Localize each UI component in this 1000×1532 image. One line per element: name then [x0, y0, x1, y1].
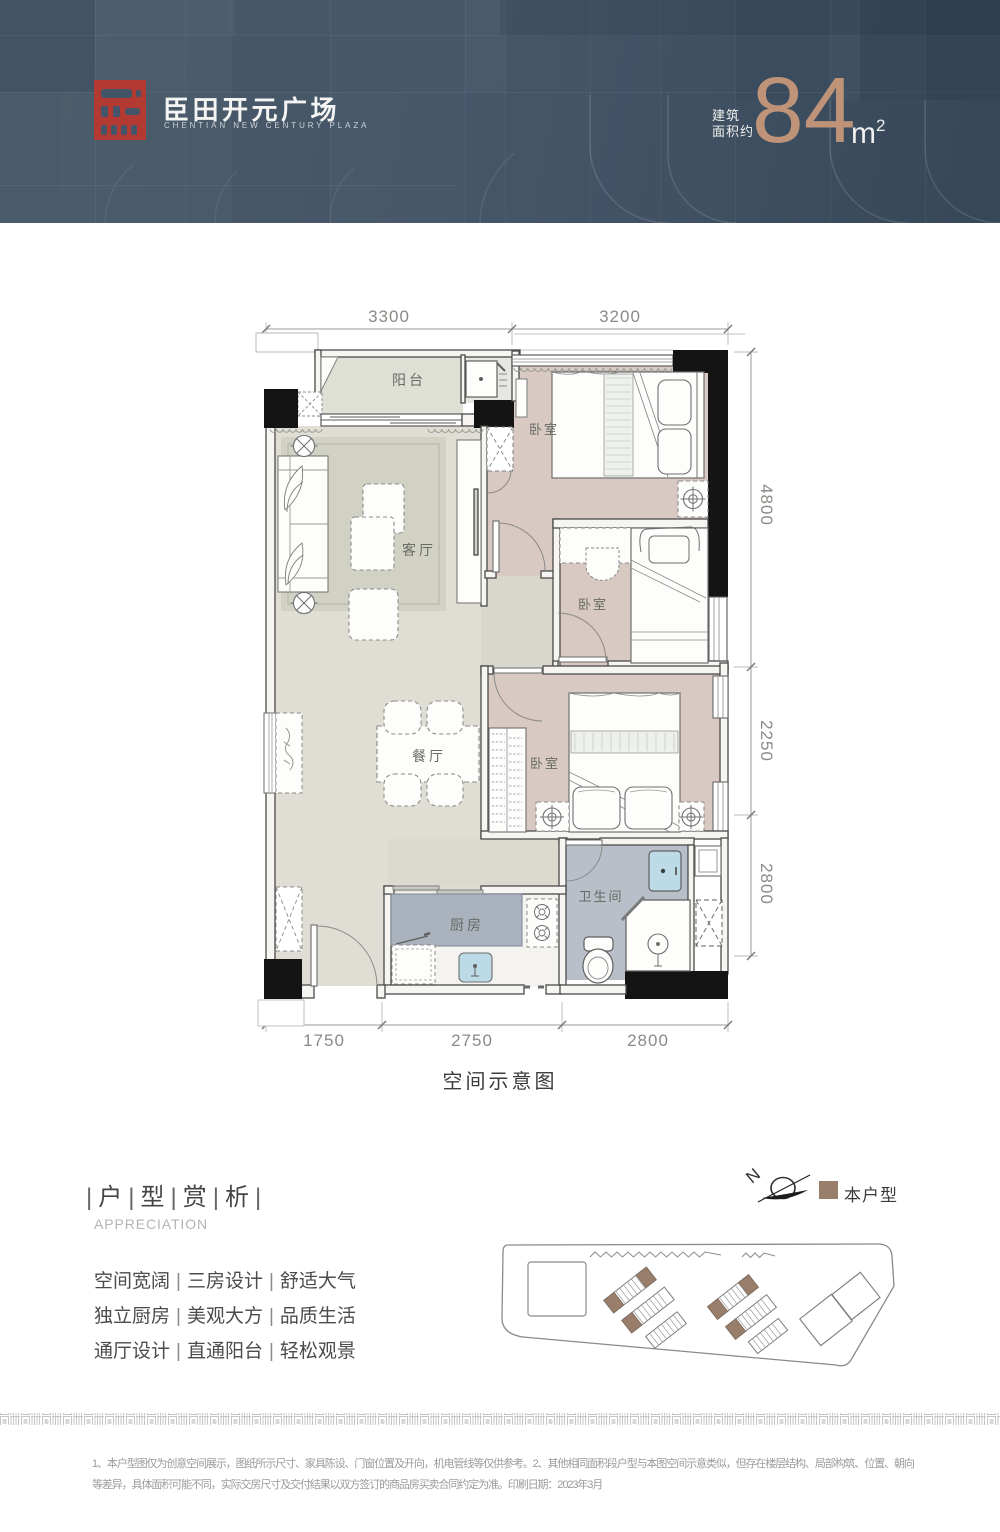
svg-text:2250: 2250 — [757, 720, 776, 762]
svg-text:客厅: 客厅 — [402, 542, 436, 558]
svg-text:N: N — [742, 1165, 764, 1187]
svg-text:4800: 4800 — [757, 484, 776, 526]
svg-text:卫生间: 卫生间 — [578, 889, 623, 904]
svg-text:卧室: 卧室 — [578, 597, 608, 612]
svg-text:2750: 2750 — [451, 1031, 493, 1050]
svg-text:阳台: 阳台 — [392, 372, 426, 388]
svg-text:2800: 2800 — [627, 1031, 669, 1050]
svg-text:餐厅: 餐厅 — [412, 748, 446, 764]
svg-text:3200: 3200 — [599, 307, 641, 326]
svg-text:厨房: 厨房 — [450, 917, 484, 933]
svg-text:空间示意图: 空间示意图 — [443, 1070, 558, 1093]
svg-text:卧室: 卧室 — [530, 756, 560, 771]
svg-text:1750: 1750 — [303, 1031, 345, 1050]
svg-text:2800: 2800 — [757, 863, 776, 905]
svg-text:3300: 3300 — [368, 307, 410, 326]
svg-text:卧室: 卧室 — [529, 422, 559, 437]
